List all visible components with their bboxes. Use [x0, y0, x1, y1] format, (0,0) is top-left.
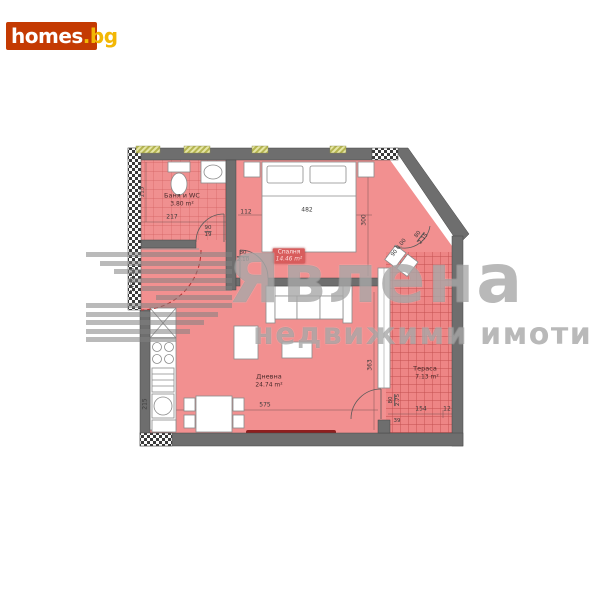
chair: [184, 398, 195, 411]
dim-bedroom-door: 80 2.10: [237, 250, 249, 264]
sofa-cushion: [320, 296, 343, 319]
sofa-cushion: [275, 296, 297, 319]
dining-table: [196, 396, 232, 432]
chair: [233, 398, 244, 411]
room-area-bath: 3.80 m²: [170, 202, 194, 209]
stove-burner: [165, 355, 174, 364]
sofa-cushion: [297, 296, 320, 319]
wall-left-lower: [140, 310, 150, 433]
dim-terrace-edge: 12: [443, 407, 451, 414]
wall-bottom: [140, 433, 463, 446]
kitchen-sink: [154, 397, 172, 415]
toilet-tank: [168, 162, 190, 172]
dim-terrace-door-sill: 39: [394, 418, 401, 424]
room-label-terrace: Тераса: [413, 365, 437, 372]
pillow-left: [267, 166, 303, 183]
sofa-back: [266, 286, 352, 296]
wall-bathroom-right: [226, 160, 236, 290]
wall-top-insulated-block: [372, 148, 398, 160]
room-area-living: 24.74 m²: [255, 383, 282, 390]
sofa-arm-left: [266, 286, 275, 323]
dim-bath-side: 115: [140, 186, 147, 197]
sofa-arm-right: [343, 286, 352, 323]
dim-living-width: 575: [259, 403, 270, 410]
dim-bedroom-width: 482: [301, 208, 312, 215]
room-label-bedroom: Спалня 14.46 m²: [273, 248, 305, 263]
stove-burner: [153, 343, 162, 352]
dim-bath-width: 217: [166, 215, 177, 222]
wall-right: [452, 236, 463, 446]
dim-terrace-width: 154: [415, 407, 426, 414]
room-label-bath: Баня и WC: [164, 192, 200, 199]
kitchen-cabinet: [152, 420, 176, 432]
screenshot-root: homes.bg: [0, 0, 600, 600]
dim-terrace-door: 80 2.75: [388, 394, 402, 406]
dim-hall-offset: 112: [240, 210, 251, 217]
stove-burner: [153, 355, 162, 364]
nightstand-left: [244, 162, 260, 177]
room-area-terrace: 7.13 m²: [415, 375, 439, 382]
dim-entry-door: 140/2.20: [130, 268, 136, 293]
dim-bedroom-depth: 300: [362, 214, 369, 225]
wall-corner-insulated: [140, 433, 172, 446]
wall-bathroom-bottom: [141, 240, 196, 248]
coffee-table: [282, 342, 312, 358]
wall-bedroom-bottom: [268, 278, 378, 286]
chair: [184, 415, 195, 428]
armchair: [234, 326, 258, 359]
stove-burner: [165, 343, 174, 352]
chair: [233, 415, 244, 428]
floorplan-drawing: [0, 0, 600, 600]
room-label-living: Дневна: [256, 373, 281, 380]
pillow-right: [310, 166, 346, 183]
dim-living-depth: 363: [368, 359, 375, 370]
nightstand-right: [358, 162, 374, 177]
dim-bath-door: 90 19: [205, 225, 212, 239]
dim-kitchen-wall: 215: [143, 398, 150, 409]
